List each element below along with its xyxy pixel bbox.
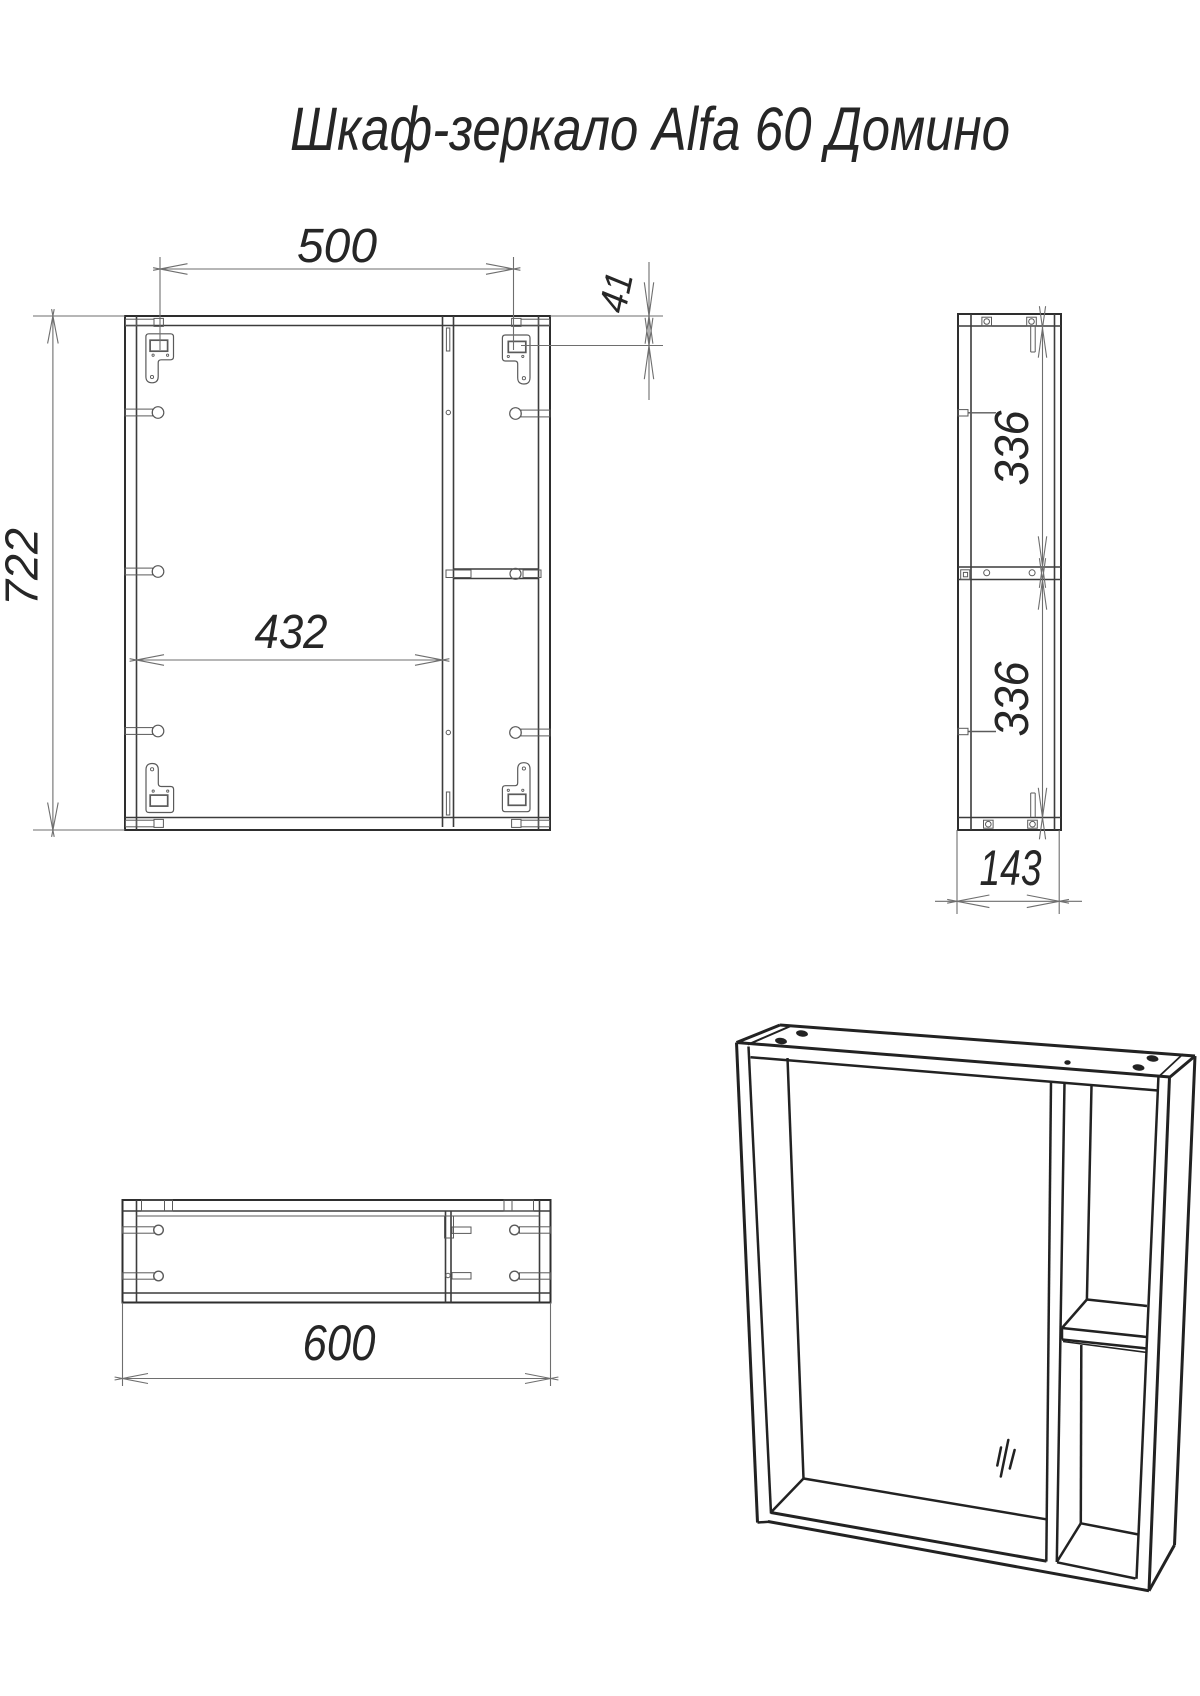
svg-text:722: 722 <box>0 528 48 606</box>
svg-text:500: 500 <box>297 220 377 273</box>
svg-text:Шкаф-зеркало Alfa 60 Домино: Шкаф-зеркало Alfa 60 Домино <box>290 95 1010 163</box>
svg-text:600: 600 <box>303 1315 376 1371</box>
svg-text:143: 143 <box>980 840 1042 896</box>
svg-text:336: 336 <box>986 410 1039 485</box>
svg-text:336: 336 <box>986 661 1039 736</box>
svg-text:432: 432 <box>255 606 328 659</box>
svg-text:41: 41 <box>592 268 642 316</box>
